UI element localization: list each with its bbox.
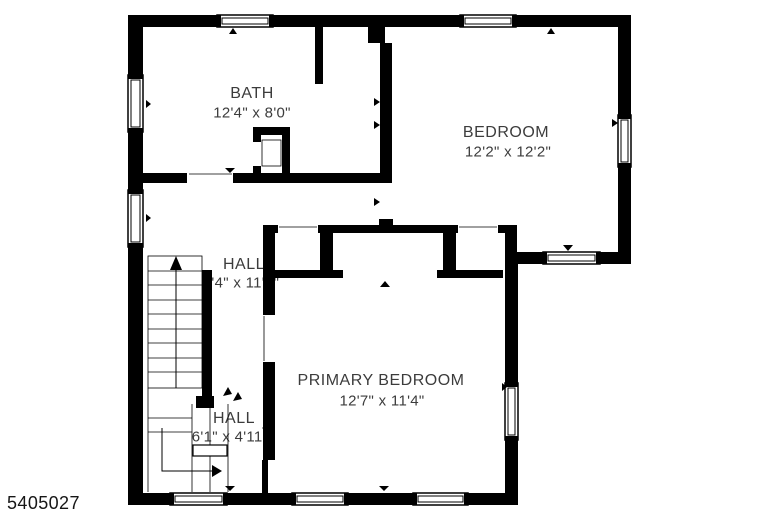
wall [262, 460, 268, 493]
stair-treads [148, 388, 228, 492]
marker-icon [146, 100, 151, 108]
wall [263, 362, 275, 460]
window [292, 493, 348, 505]
marker-icon [374, 121, 380, 129]
floorplan: BATH 12'4" x 8'0" BEDROOM 12'2" x 12'2" … [0, 0, 768, 522]
floorplan-drawing [0, 0, 768, 522]
wall [253, 127, 290, 135]
marker-icon [612, 119, 618, 127]
window [413, 493, 468, 505]
stairs-up-arrow-icon [170, 256, 182, 270]
wall [380, 43, 392, 183]
window [618, 115, 631, 167]
window [505, 383, 518, 440]
wall [379, 219, 393, 225]
marker-icon [233, 392, 242, 401]
wall [498, 225, 517, 233]
wall [253, 166, 261, 175]
staircase-lower [148, 388, 228, 492]
window [460, 15, 516, 27]
marker-icon [225, 168, 235, 173]
stair-outline [148, 256, 202, 388]
wall [505, 252, 518, 505]
stair-treads [148, 271, 202, 372]
wall [368, 27, 385, 43]
window [217, 15, 273, 27]
marker-icon [547, 28, 555, 34]
door-leaf [193, 445, 227, 456]
window [543, 252, 600, 264]
marker-icon [563, 245, 573, 251]
wall [196, 396, 214, 408]
stairs-direction-arrow-icon [212, 465, 222, 477]
windows [128, 15, 631, 505]
wall [128, 15, 631, 27]
wall [505, 233, 517, 252]
wall [202, 270, 212, 398]
wall [315, 27, 323, 84]
window [128, 75, 143, 132]
marker-icon [380, 281, 390, 287]
window [128, 190, 143, 247]
wall [318, 225, 458, 233]
wall [437, 270, 503, 278]
marker-icon [229, 28, 237, 34]
marker-icon [379, 486, 389, 491]
interior-walls [143, 27, 517, 493]
marker-icon [225, 486, 235, 491]
marker-icon [146, 214, 151, 222]
wall [273, 270, 343, 278]
marker-icon [223, 387, 232, 396]
window [170, 493, 227, 505]
marker-icon [374, 98, 380, 106]
wall [282, 135, 290, 182]
closet-door [262, 140, 281, 166]
wall [143, 173, 187, 183]
wall [253, 135, 261, 142]
marker-icon [374, 198, 380, 206]
staircase-upper [148, 256, 202, 388]
